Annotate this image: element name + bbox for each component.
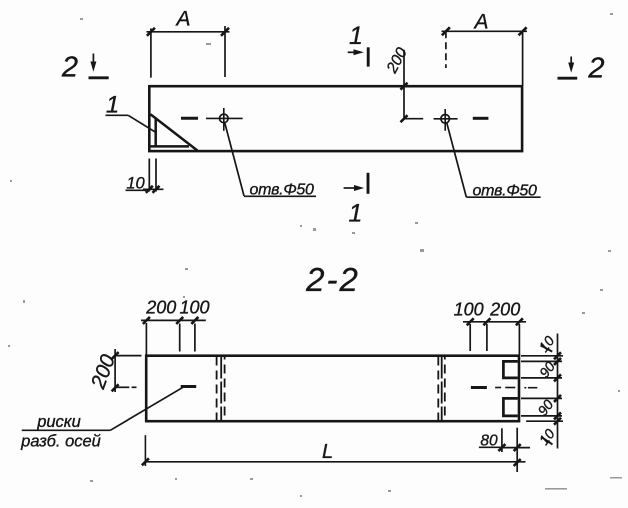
- svg-text:200: 200: [145, 298, 176, 318]
- svg-text:1: 1: [349, 22, 363, 50]
- svg-text:2: 2: [61, 52, 78, 84]
- svg-text:разб. осей: разб. осей: [20, 433, 101, 451]
- svg-text:L: L: [322, 441, 333, 463]
- svg-text:1: 1: [349, 200, 363, 228]
- svg-text:А: А: [174, 8, 190, 31]
- svg-text:1: 1: [106, 92, 119, 119]
- svg-text:200: 200: [489, 300, 520, 320]
- svg-text:10: 10: [536, 426, 558, 448]
- svg-text:отв.Φ50: отв.Φ50: [473, 182, 538, 199]
- svg-text:100: 100: [179, 298, 209, 318]
- svg-text:А: А: [472, 11, 488, 34]
- svg-text:100: 100: [454, 300, 484, 320]
- svg-text:10: 10: [535, 333, 557, 355]
- svg-text:риски: риски: [36, 413, 81, 431]
- svg-text:отв.Φ50: отв.Φ50: [250, 181, 315, 198]
- svg-text:200: 200: [383, 45, 411, 77]
- svg-text:2: 2: [587, 53, 604, 85]
- svg-text:2-2: 2-2: [305, 261, 360, 298]
